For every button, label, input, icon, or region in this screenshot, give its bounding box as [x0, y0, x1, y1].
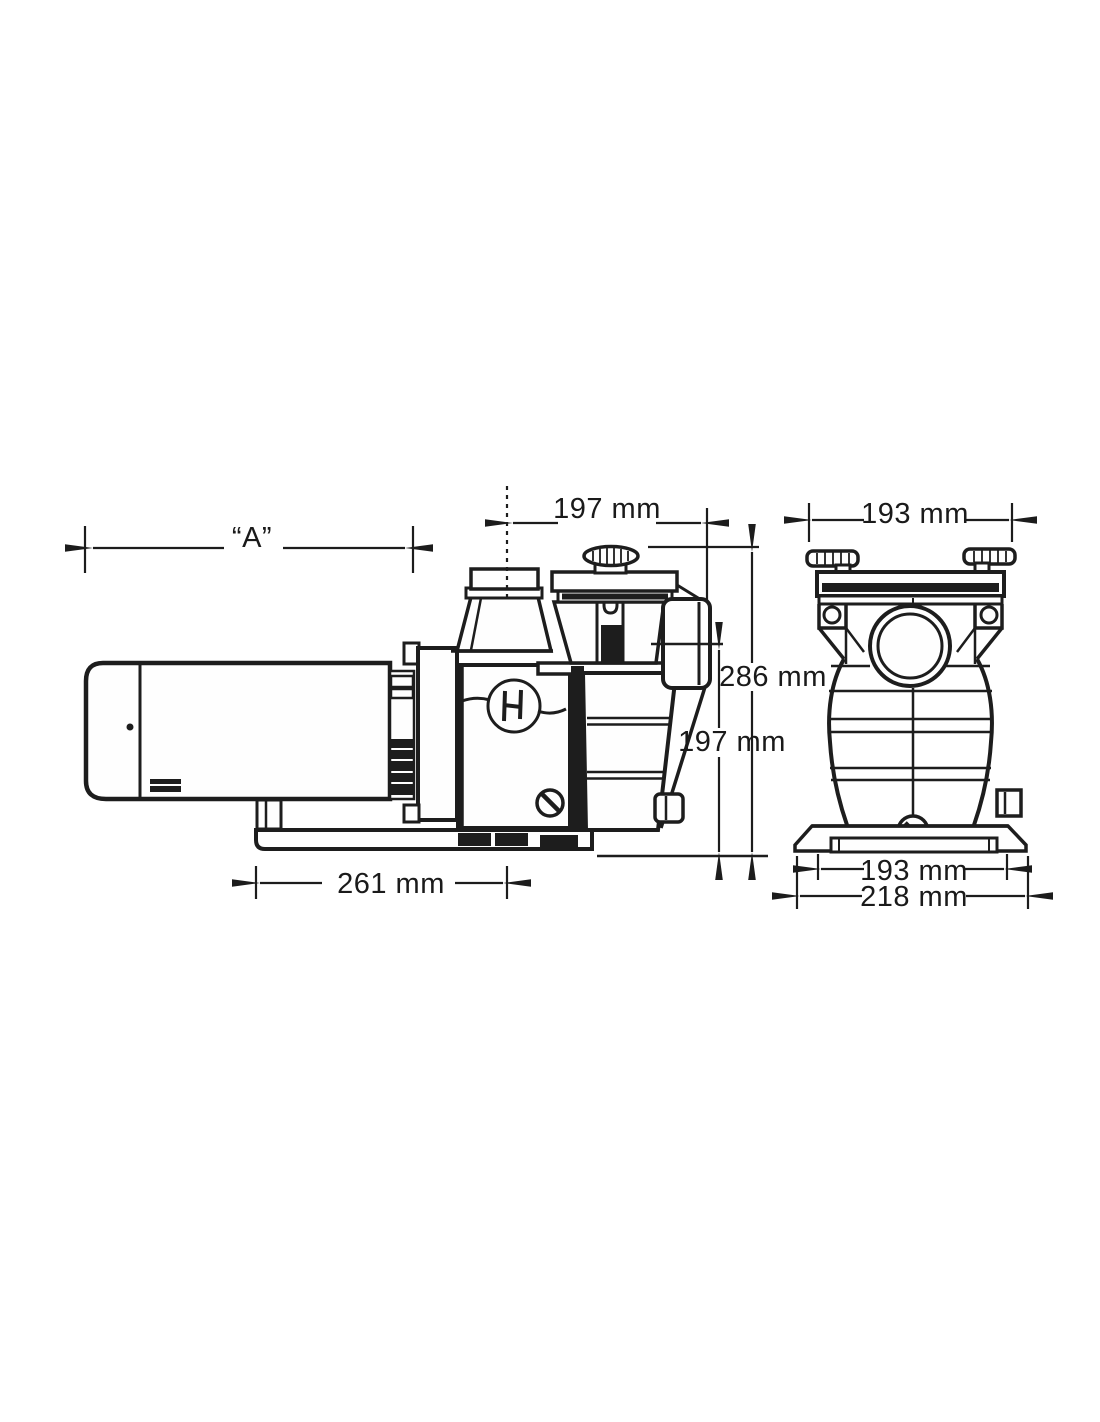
rib-bar — [391, 676, 413, 687]
dim-label-top-width-side: 197 mm — [553, 493, 661, 525]
rib-bar — [391, 761, 413, 771]
rib-bar — [391, 784, 413, 795]
motor-body — [86, 663, 390, 799]
shoulder-right — [977, 628, 1002, 659]
side-fitting — [997, 790, 1021, 816]
face-plate-bottom-block — [404, 805, 419, 822]
motor-dot — [127, 724, 134, 731]
side-view — [86, 547, 768, 857]
dim-label-motor-length: “A” — [232, 522, 272, 554]
motor-vent-slot — [150, 779, 181, 784]
bolt-hole-right — [981, 607, 997, 623]
front-view — [795, 549, 1026, 852]
base-pad — [458, 833, 491, 846]
front-subflange — [819, 596, 1002, 604]
dim-top-width-front: 193 mm — [809, 498, 1012, 542]
lid-cap — [471, 569, 538, 589]
base-pad — [540, 835, 578, 847]
motor-vent-slot — [150, 786, 181, 792]
dim-label-base-width-overall: 218 mm — [860, 881, 968, 913]
shoulder-right-inner — [957, 628, 975, 652]
rib-bar — [391, 750, 413, 759]
rib-bar — [391, 739, 413, 748]
front-base-plate — [831, 838, 997, 852]
shoulder-left-inner — [846, 628, 864, 652]
shoulder-left — [819, 628, 844, 659]
base-pad — [495, 833, 528, 846]
dim-label-port-center-height: 197 mm — [678, 726, 786, 758]
face-plate — [418, 648, 457, 820]
strainer-flange-upper — [552, 572, 677, 591]
clamp-band — [571, 666, 584, 830]
dim-base-length: 261 mm — [256, 866, 507, 900]
motor-foot-bracket — [257, 800, 281, 829]
suction-port-outer — [870, 606, 950, 686]
drawing-canvas: “A” 197 mm 193 mm 286 mm — [0, 0, 1100, 1422]
strainer-stem-dark-slot — [601, 625, 622, 663]
dim-label-top-width-front: 193 mm — [861, 498, 969, 530]
rib-bar — [391, 773, 413, 782]
front-flange-band — [822, 583, 999, 592]
drain-plug — [655, 794, 683, 822]
pump-dimension-drawing: “A” 197 mm 193 mm 286 mm — [0, 0, 1100, 1422]
dim-motor-length: “A” — [85, 522, 413, 573]
dim-label-base-length: 261 mm — [337, 868, 445, 900]
motor-rib-section — [390, 671, 414, 799]
barrel-left-edge — [829, 659, 847, 825]
rib-bar — [391, 689, 413, 698]
barrel-right-edge — [974, 659, 992, 825]
strainer-flange-band — [562, 594, 668, 600]
bolt-hole-left — [824, 607, 840, 623]
dim-label-overall-height: 286 mm — [719, 661, 827, 693]
